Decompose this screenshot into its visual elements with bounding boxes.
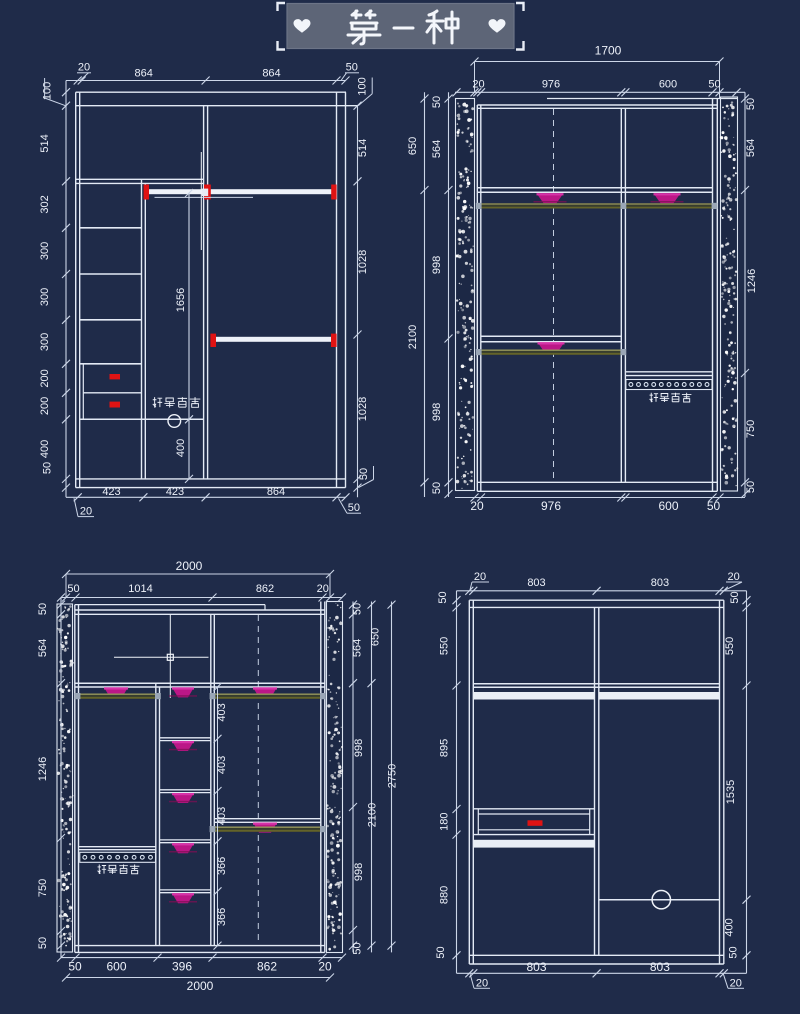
svg-text:403: 403 (216, 756, 228, 774)
svg-text:650: 650 (370, 628, 382, 646)
svg-text:20: 20 (472, 78, 484, 90)
svg-text:600: 600 (658, 499, 678, 513)
svg-text:300: 300 (39, 333, 51, 351)
svg-text:998: 998 (353, 739, 365, 757)
svg-text:2000: 2000 (176, 559, 203, 573)
svg-text:564: 564 (37, 639, 49, 657)
svg-text:50: 50 (435, 946, 447, 958)
svg-text:50: 50 (729, 591, 741, 603)
svg-text:423: 423 (166, 486, 184, 498)
svg-text:403: 403 (216, 807, 228, 825)
svg-text:1656: 1656 (175, 288, 187, 312)
svg-text:50: 50 (352, 603, 364, 615)
svg-text:895: 895 (439, 739, 451, 757)
svg-text:100: 100 (41, 82, 53, 100)
svg-text:864: 864 (262, 68, 280, 80)
svg-text:50: 50 (745, 481, 757, 493)
svg-text:550: 550 (439, 637, 451, 655)
svg-text:564: 564 (431, 140, 443, 158)
svg-text:20: 20 (78, 62, 90, 74)
svg-text:803: 803 (651, 577, 669, 589)
svg-text:1246: 1246 (746, 269, 758, 293)
svg-text:862: 862 (256, 583, 274, 595)
svg-text:20: 20 (318, 960, 332, 974)
svg-text:50: 50 (67, 583, 79, 595)
svg-text:50: 50 (42, 462, 54, 474)
svg-text:1535: 1535 (725, 780, 737, 804)
svg-text:750: 750 (37, 879, 49, 897)
svg-text:564: 564 (745, 139, 757, 157)
svg-text:803: 803 (650, 960, 670, 974)
svg-text:550: 550 (724, 637, 736, 655)
svg-text:998: 998 (431, 256, 443, 274)
svg-text:803: 803 (526, 960, 546, 974)
svg-text:976: 976 (542, 78, 560, 90)
svg-text:20: 20 (730, 977, 742, 989)
svg-text:514: 514 (39, 134, 51, 152)
svg-text:564: 564 (352, 639, 364, 657)
svg-text:864: 864 (135, 68, 153, 80)
svg-text:100: 100 (357, 77, 369, 95)
svg-text:400: 400 (39, 440, 51, 458)
svg-text:300: 300 (39, 288, 51, 306)
svg-text:600: 600 (106, 960, 126, 974)
svg-text:50: 50 (707, 499, 721, 513)
svg-text:862: 862 (257, 960, 277, 974)
svg-text:803: 803 (527, 577, 545, 589)
svg-text:750: 750 (745, 420, 757, 438)
svg-text:600: 600 (659, 78, 677, 90)
svg-text:366: 366 (216, 908, 228, 926)
svg-text:1014: 1014 (128, 583, 152, 595)
svg-text:180: 180 (439, 813, 451, 831)
svg-text:20: 20 (476, 977, 488, 989)
svg-text:514: 514 (357, 139, 369, 157)
svg-text:1028: 1028 (357, 397, 369, 421)
svg-text:396: 396 (172, 960, 192, 974)
svg-text:300: 300 (39, 242, 51, 260)
svg-text:50: 50 (708, 78, 720, 90)
svg-text:2750: 2750 (387, 764, 399, 788)
svg-text:50: 50 (37, 937, 49, 949)
svg-text:200: 200 (39, 369, 51, 387)
svg-text:976: 976 (541, 499, 561, 513)
svg-text:403: 403 (216, 703, 228, 721)
svg-text:50: 50 (346, 62, 358, 74)
svg-text:50: 50 (431, 96, 443, 108)
svg-text:20: 20 (317, 583, 329, 595)
svg-text:50: 50 (37, 603, 49, 615)
svg-text:998: 998 (353, 863, 365, 881)
svg-text:50: 50 (348, 502, 360, 514)
svg-text:998: 998 (431, 403, 443, 421)
svg-text:50: 50 (745, 98, 757, 110)
svg-text:2100: 2100 (407, 325, 419, 349)
svg-text:50: 50 (437, 591, 449, 603)
svg-text:2000: 2000 (187, 979, 214, 993)
svg-text:2100: 2100 (367, 803, 379, 827)
svg-text:864: 864 (267, 486, 285, 498)
svg-text:880: 880 (439, 886, 451, 904)
svg-text:200: 200 (39, 397, 51, 415)
svg-text:400: 400 (175, 439, 187, 457)
svg-text:1028: 1028 (357, 250, 369, 274)
svg-text:20: 20 (727, 571, 739, 583)
svg-text:1700: 1700 (595, 44, 622, 58)
svg-text:423: 423 (102, 486, 120, 498)
svg-text:650: 650 (407, 137, 419, 155)
svg-text:50: 50 (68, 960, 82, 974)
svg-text:20: 20 (470, 499, 484, 513)
svg-text:1246: 1246 (37, 757, 49, 781)
svg-text:50: 50 (352, 942, 364, 954)
svg-text:50: 50 (431, 482, 443, 494)
svg-text:400: 400 (724, 918, 736, 936)
svg-text:50: 50 (358, 468, 370, 480)
svg-text:302: 302 (39, 195, 51, 213)
svg-text:20: 20 (80, 505, 92, 517)
svg-text:20: 20 (474, 571, 486, 583)
svg-text:366: 366 (216, 857, 228, 875)
svg-text:50: 50 (728, 946, 740, 958)
